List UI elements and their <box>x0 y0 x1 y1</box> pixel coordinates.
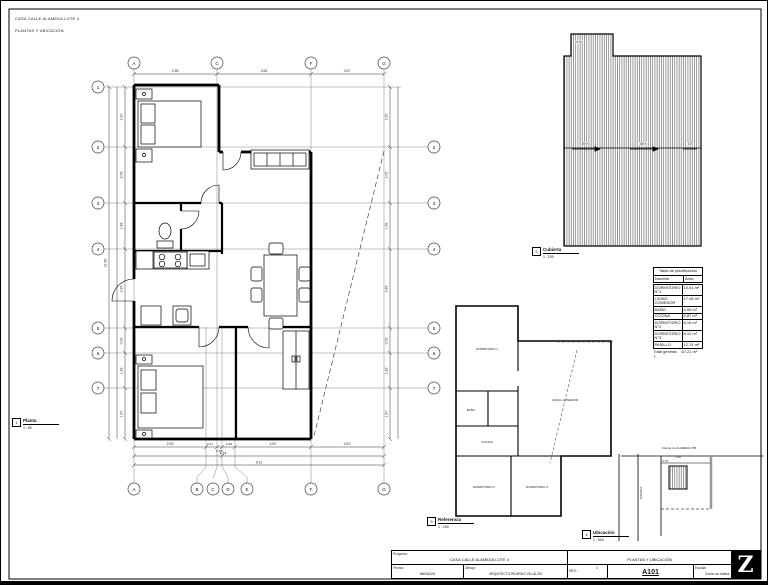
scale-label: Escala: <box>695 566 706 570</box>
schedule-header: Nombre Área <box>653 276 703 284</box>
grid-bubble-label: G <box>382 61 386 66</box>
reference-plan: DORMITORIO 1 BAÑO COCINA LIVING COMEDOR … <box>456 306 613 516</box>
floor-plan <box>112 85 384 439</box>
titleblock-title-cell: PLANTAS Y UBICACIÓN <box>568 551 731 564</box>
svg-text:0.92: 0.92 <box>385 338 389 345</box>
site-plan: CALLE LA ALAMEDA 785 AVENIDA 0.70 1.30 <box>619 446 763 541</box>
schedule-total-label: Total general: 7 <box>653 350 681 360</box>
view-name: Ubicación <box>593 530 629 537</box>
project-name: CASA CALLE ALAMEDA LOTE 4 <box>392 557 567 562</box>
schedule-total-area: 67.21 m² <box>681 350 703 360</box>
table-row: DORMITORIO N°38.12 m² <box>654 331 702 342</box>
view-tag-referencia: 3 Referencia 1 : 100 <box>427 517 474 529</box>
chair <box>299 267 310 281</box>
grid-bubble-label: E <box>245 487 248 492</box>
rev-label: REV: - <box>569 569 579 573</box>
dining-table <box>264 255 297 316</box>
svg-text:2.20: 2.20 <box>385 114 389 121</box>
titleblock-date-cell: Fecha: 06/06/24 <box>392 565 464 578</box>
date-value: 06/06/24 <box>392 571 463 576</box>
rev-value: 1 <box>596 566 598 570</box>
view-scale: 1 : 100 <box>543 255 579 259</box>
chair <box>251 267 262 281</box>
view-tag-cubierta: 2 Cubierta 1 : 100 <box>532 247 579 259</box>
site-building-footprint <box>669 466 687 489</box>
svg-text:4.74: 4.74 <box>220 452 227 456</box>
pillow <box>141 370 156 390</box>
view-name: Cubierta <box>543 247 579 254</box>
schedule-title: Tabla de planificación <box>653 267 703 276</box>
svg-text:2.67: 2.67 <box>344 69 351 73</box>
grid-bubble-label: F <box>310 61 313 66</box>
reference-walls <box>456 341 561 516</box>
grid-bubble-label: A <box>132 487 135 492</box>
toilet <box>159 223 171 239</box>
pillow <box>141 125 155 144</box>
svg-text:2.53: 2.53 <box>167 442 174 446</box>
roof-slope-label: 35% <box>639 142 646 146</box>
view-number: 1 <box>12 418 21 427</box>
view-scale: 1 : 50 <box>23 426 59 430</box>
grid-bubble-label: B <box>195 487 198 492</box>
schedule-col-name: Nombre <box>654 276 684 283</box>
pillow <box>141 393 156 413</box>
svg-text:3.52: 3.52 <box>261 69 268 73</box>
roof-dim-label: 1.8 <box>688 142 693 146</box>
view-name: Referencia <box>438 517 474 524</box>
sheet-number: A101 <box>642 569 659 576</box>
svg-text:12.89: 12.89 <box>104 259 108 268</box>
titleblock-drawn-cell: Dibujo: ARQUITECTO RICARDO VILLALÓN <box>464 565 568 578</box>
toilet-tank <box>157 241 173 248</box>
svg-text:2.96: 2.96 <box>172 69 179 73</box>
svg-text:2.05: 2.05 <box>120 172 124 179</box>
roof-plan: 35% 35% 1.8 0.60 <box>564 34 701 246</box>
room-label: DORMITORIO 1 <box>476 347 498 351</box>
svg-text:1.68: 1.68 <box>385 223 389 230</box>
schedule-table: Tabla de planificación Nombre Área DORMI… <box>653 267 703 360</box>
table-row: LIVING COMEDOR17.28 m² <box>654 296 702 307</box>
title-block: Proyecto: CASA CALLE ALAMEDA LOTE 4 PLAN… <box>391 550 761 579</box>
svg-text:2.89: 2.89 <box>120 286 124 293</box>
stove <box>154 252 187 268</box>
room-label: LIVING COMEDOR <box>552 398 579 402</box>
view-number: 4 <box>582 530 591 539</box>
svg-text:1.87: 1.87 <box>120 411 124 418</box>
svg-text:0.48: 0.48 <box>226 442 232 446</box>
furniture <box>136 89 310 438</box>
svg-text:2.89: 2.89 <box>385 286 389 293</box>
svg-text:2.87: 2.87 <box>270 442 277 446</box>
view-name: Planta <box>23 418 59 425</box>
schedule-col-area: Área <box>684 276 702 283</box>
schedule-total-row: Total general: 7 67.21 m² <box>653 350 703 360</box>
room-label: BAÑO <box>467 407 476 412</box>
svg-text:2.67: 2.67 <box>344 442 351 446</box>
grid-bubble-label: G <box>382 487 386 492</box>
svg-text:9.11: 9.11 <box>256 461 263 465</box>
roof-dim-label: 0.60 <box>576 40 582 44</box>
date-label: Fecha: <box>393 566 404 570</box>
cabinet <box>141 306 161 325</box>
sink <box>190 254 205 266</box>
svg-text:1.68: 1.68 <box>120 223 124 230</box>
washer-door <box>176 309 188 322</box>
chair <box>269 243 283 254</box>
view-scale: 1 : 500 <box>593 538 629 542</box>
view-number: 2 <box>532 247 541 256</box>
roof-slope-label: 35% <box>581 142 588 146</box>
svg-text:0.92: 0.92 <box>120 338 124 345</box>
table-row: PASILLO12.74 m² <box>654 342 702 348</box>
scale-value: Como se indica <box>694 572 731 576</box>
schedule-body: DORMITORIO N°110.01 m² LIVING COMEDOR17.… <box>653 284 703 349</box>
view-number: 3 <box>427 517 436 526</box>
titleblock-number-cell: A101 <box>608 565 694 578</box>
titleblock-project-cell: Proyecto: CASA CALLE ALAMEDA LOTE 4 <box>392 551 568 564</box>
sheet-title: PLANTAS Y UBICACIÓN <box>568 557 731 562</box>
company-logo: Z <box>731 551 760 578</box>
table-row: DORMITORIO N°110.01 m² <box>654 285 702 296</box>
drawn-value: ARQUITECTO RICARDO VILLALÓN <box>464 572 567 576</box>
site-dim: 1.30 <box>675 455 681 459</box>
drawn-label: Dibujo: <box>465 566 476 570</box>
svg-text:0.41: 0.41 <box>207 442 213 446</box>
view-scale: 1 : 100 <box>438 525 474 529</box>
svg-text:1.28: 1.28 <box>120 368 124 375</box>
roof-outline <box>564 34 701 246</box>
section-line <box>314 151 384 436</box>
room-label: COCINA <box>481 440 493 444</box>
chair <box>299 288 310 302</box>
pillow <box>141 104 155 123</box>
room-label: DORMITORIO 2 <box>473 485 495 489</box>
chair <box>269 318 283 329</box>
project-label: Proyecto: <box>393 552 408 556</box>
site-dim: 0.70 <box>662 459 668 463</box>
svg-text:2.05: 2.05 <box>385 172 389 179</box>
svg-text:1.87: 1.87 <box>385 411 389 418</box>
chair <box>251 288 262 302</box>
room-label: DORMITORIO 3 <box>526 485 548 489</box>
view-tag-ubicacion: 4 Ubicación 1 : 500 <box>582 530 629 542</box>
svg-text:2.20: 2.20 <box>120 114 124 121</box>
drawing-sheet: CASA CALLE ALAMEDA LOTE 4 PLANTAS Y UBIC… <box>0 0 768 585</box>
reference-dashed-lines <box>550 342 613 463</box>
table-row: DORMITORIO N°28.19 m² <box>654 320 702 331</box>
street-name: AVENIDA <box>639 487 643 500</box>
view-tag-planta: 1 Planta 1 : 50 <box>12 418 59 430</box>
titleblock-scale-cell: Escala: Como se indica <box>694 565 731 578</box>
svg-text:1.28: 1.28 <box>385 368 389 375</box>
titleblock-rev-cell: REV: - 1 <box>568 565 608 578</box>
living-window <box>251 150 309 169</box>
grid-bubble-label: F <box>310 487 313 492</box>
grid-bubble-label: A <box>132 61 135 66</box>
street-name: CALLE LA ALAMEDA 785 <box>662 446 697 450</box>
